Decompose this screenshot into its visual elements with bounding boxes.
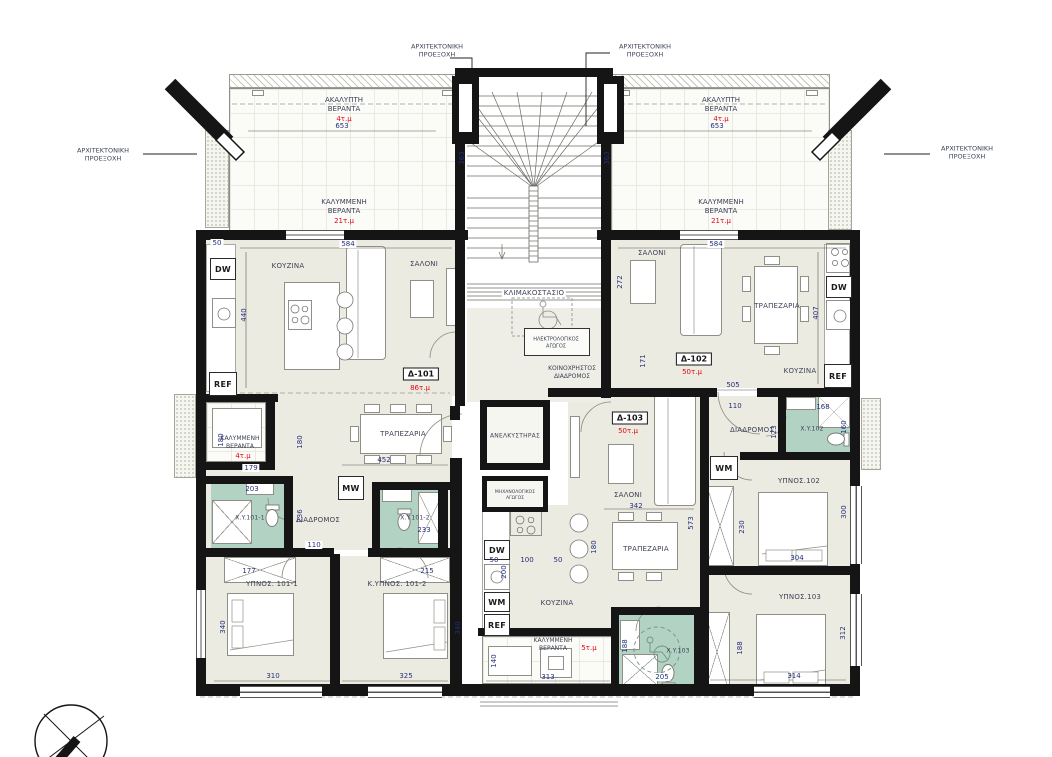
room-label-bedroom-103: ΥΠΝΟΣ.103 xyxy=(779,593,821,601)
dim-110: 110 xyxy=(305,541,322,549)
window xyxy=(850,486,862,564)
wall xyxy=(450,406,460,420)
wall xyxy=(548,388,603,397)
chair xyxy=(618,512,634,521)
chair xyxy=(800,306,809,322)
north-compass-icon xyxy=(35,705,107,757)
dim-272: 272 xyxy=(616,275,624,288)
dim-325: 325 xyxy=(399,672,412,680)
wall xyxy=(757,388,850,397)
balcony-door xyxy=(680,230,738,240)
wall xyxy=(611,607,619,692)
side-table-d101 xyxy=(410,280,434,318)
dim-314: 314 xyxy=(787,672,800,680)
hob-d103 xyxy=(510,510,542,536)
side-table-d103 xyxy=(608,444,634,484)
room-label-dining-d101: ΤΡΑΠΕΖΑΡΙΑ xyxy=(380,430,426,438)
dim-340: 340 xyxy=(454,621,462,634)
chair xyxy=(416,455,432,464)
dim-304: 304 xyxy=(790,554,803,562)
pillar-inset xyxy=(604,84,617,132)
chair xyxy=(390,404,406,413)
label-common-corridor: ΚΟΙΝΟΧΡΗΣΤΟΣ ΔΙΑΔΡΟΜΟΣ xyxy=(532,365,612,381)
dim-300: 300 xyxy=(840,505,848,518)
dim-50: 50 xyxy=(554,556,563,564)
refrigerator-tag: REF xyxy=(824,364,852,388)
apartment-tag-d103: Δ-103 xyxy=(612,412,648,425)
dim-363: 363 xyxy=(603,151,611,164)
dim-180: 180 xyxy=(217,433,225,446)
dim-230: 230 xyxy=(738,520,746,533)
sofa-d101 xyxy=(346,246,386,360)
room-label-bath-xy102: X.Y.102 xyxy=(800,426,823,433)
dim-50: 50 xyxy=(490,556,499,564)
wall xyxy=(196,548,334,557)
room-label-bath-xy101-1: X.Y.101-1 xyxy=(235,515,265,522)
chair xyxy=(443,426,452,442)
tv-unit-d102 xyxy=(630,260,656,304)
wall xyxy=(372,482,380,550)
dim-110: 110 xyxy=(728,402,741,410)
dim-203: 203 xyxy=(245,485,258,493)
chair xyxy=(800,276,809,292)
dim-180: 180 xyxy=(296,435,304,448)
room-label-living-d102: ΣΑΛΟΝΙ xyxy=(638,249,666,257)
dim-123: 123 xyxy=(770,425,778,438)
window xyxy=(850,594,862,666)
wall xyxy=(450,458,462,550)
callout-arch-projection-right: ΑΡΧΙΤΕΚΤΟΝΙΚΗ ΠΡΟΕΞΟΧΗ xyxy=(937,145,997,162)
sofa-d103 xyxy=(654,394,696,506)
apartment-area-d102: 50τ.μ xyxy=(682,368,702,376)
chair xyxy=(390,455,406,464)
dishwasher-tag: DW xyxy=(826,276,852,298)
wall xyxy=(438,482,448,550)
chair xyxy=(350,426,359,442)
refrigerator-tag: REF xyxy=(209,372,237,396)
chair xyxy=(618,572,634,581)
veranda-covered-area: 21τ.μ xyxy=(711,217,731,225)
veranda-open-label: ΑΚΑΛΥΠΤΗ ΒΕΡΑΝΤΑ xyxy=(688,96,754,114)
vanity-xy101-2 xyxy=(382,489,412,502)
wall xyxy=(450,548,462,688)
room-label-kitchen-d102: ΚΟΥΖΙΝΑ xyxy=(784,367,817,375)
wall xyxy=(694,607,702,692)
wall xyxy=(266,394,275,470)
chair xyxy=(646,512,662,521)
dim-505: 505 xyxy=(726,381,739,389)
dim-160: 160 xyxy=(840,420,848,433)
washing-machine-tag: WM xyxy=(710,456,738,480)
veranda-small-area: 4τ.μ xyxy=(235,452,250,460)
veranda-bottom-label: ΚΑΛΥΜΜΕΝΗ ΒΕΡΑΝΤΑ xyxy=(524,637,582,653)
pillar-inset xyxy=(459,84,472,132)
dim-312: 312 xyxy=(839,626,847,639)
window xyxy=(196,590,206,658)
dim-340: 340 xyxy=(219,620,227,633)
apartment-tag-d102: Δ-102 xyxy=(676,353,712,366)
dim-168: 168 xyxy=(816,403,829,411)
room-label-stairwell: ΚΛΙΜΑΚΟΣΤΑΣΙΟ xyxy=(502,289,566,297)
apartment-area-d103: 50τ.μ xyxy=(618,427,638,435)
dim-100: 100 xyxy=(520,556,533,564)
room-label-bedroom-101-2: Κ.ΥΠΝΟΣ. 101-2 xyxy=(367,580,426,588)
dim-653: 653 xyxy=(335,122,348,130)
room-label-living-d101: ΣΑΛΟΝΙ xyxy=(410,260,438,268)
stair-treads xyxy=(467,92,601,300)
exterior-texture-right xyxy=(828,130,852,230)
apartment-tag-d101: Δ-101 xyxy=(403,368,439,381)
room-label-living-d103: ΣΑΛΟΝΙ xyxy=(614,491,642,499)
callout-arch-projection-top-right: ΑΡΧΙΤΕΚΤΟΝΙΚΗ ΠΡΟΕΞΟΧΗ xyxy=(614,43,676,60)
sofa-d102 xyxy=(680,244,722,336)
dim-50: 50 xyxy=(211,239,224,247)
dim-363: 363 xyxy=(458,151,466,164)
sink-d102 xyxy=(826,300,852,330)
dim-233: 233 xyxy=(417,526,430,534)
bed-101-1 xyxy=(227,593,294,656)
wall xyxy=(330,554,340,686)
dishwasher-tag: DW xyxy=(210,258,236,280)
vent xyxy=(806,90,818,96)
dim-215: 215 xyxy=(420,567,433,575)
hob-d101 xyxy=(288,300,312,330)
floor-plan: DW REF MW DW REF DW WM REF WM ΑΡΧΙΤΕΚΤΟΝ… xyxy=(0,0,1052,757)
dim-440: 440 xyxy=(240,308,248,321)
wall xyxy=(284,476,293,556)
dim-180: 180 xyxy=(590,540,598,553)
veranda-open-label: ΑΚΑΛΥΠΤΗ ΒΕΡΑΝΤΑ xyxy=(311,96,377,114)
room-label-bedroom-101-1: ΥΠΝΟΣ. 101-1 xyxy=(246,580,298,588)
dim-310: 310 xyxy=(266,672,279,680)
dim-584: 584 xyxy=(339,240,356,248)
refrigerator-tag: REF xyxy=(484,614,510,636)
window xyxy=(368,686,442,698)
dim-584: 584 xyxy=(707,240,724,248)
room-label-kitchen-d103: ΚΟΥΖΙΝΑ xyxy=(541,599,574,607)
dim-653: 653 xyxy=(710,122,723,130)
exterior-texture-left xyxy=(205,130,229,228)
veranda-covered-label: ΚΑΛΥΜΜΕΝΗ ΒΕΡΑΝΤΑ xyxy=(688,198,754,216)
dim-188: 188 xyxy=(621,639,629,652)
tv-unit-d103 xyxy=(570,416,580,478)
balcony-rails xyxy=(480,702,618,706)
callout-arch-projection-top-left: ΑΡΧΙΤΕΚΤΟΝΙΚΗ ΠΡΟΕΞΟΧΗ xyxy=(406,43,468,60)
exterior-texture-right-low xyxy=(861,398,881,470)
wall xyxy=(204,476,292,484)
vent xyxy=(252,90,264,96)
washing-machine-tag: WM xyxy=(484,592,510,612)
dim-205: 205 xyxy=(653,673,670,681)
awning-hatch-left xyxy=(229,74,457,88)
exterior-texture-left-low xyxy=(174,394,196,478)
chair xyxy=(742,306,751,322)
wall xyxy=(708,566,850,575)
chair xyxy=(364,404,380,413)
dim-313: 313 xyxy=(541,673,554,681)
room-label-hall-right: ΔΙΑΔΡΟΜΟΣ xyxy=(730,426,774,434)
window xyxy=(240,686,322,698)
sink-d101 xyxy=(212,298,236,328)
window xyxy=(754,686,830,698)
wall xyxy=(611,607,703,615)
wall xyxy=(740,452,850,460)
dim-236: 236 xyxy=(296,509,304,522)
veranda-table-inner xyxy=(548,656,564,670)
room-label-elevator: ΑΝΕΛΚΥΣΤΗΡΑΣ xyxy=(490,433,540,440)
dim-452: 452 xyxy=(377,456,390,464)
room-label-bath-xy101-2: X.Y.101-2 xyxy=(400,515,430,522)
room-label-dining-d102: ΤΡΑΠΕΖΑΡΙΑ xyxy=(754,302,800,310)
veranda-bottom-area: 5τ.μ xyxy=(581,644,596,652)
room-label-bath-xy103: X.Y.103 xyxy=(666,648,689,655)
room-label-kitchen-d101: ΚΟΥΖΙΝΑ xyxy=(272,262,305,270)
shower-xy101-1 xyxy=(212,500,252,544)
veranda-covered-label: ΚΑΛΥΜΜΕΝΗ ΒΕΡΑΝΤΑ xyxy=(311,198,377,216)
awning-hatch-right xyxy=(611,74,830,88)
dim-179: 179 xyxy=(242,464,259,472)
callout-arch-projection-left: ΑΡΧΙΤΕΚΤΟΝΙΚΗ ΠΡΟΕΞΟΧΗ xyxy=(73,147,133,164)
wall xyxy=(601,306,611,398)
label-mechanical-shaft: ΜΗΧΑΝΟΛΟΓΙΚΟΣ ΑΓΩΓΟΣ xyxy=(487,490,543,502)
veranda-covered-area: 21τ.μ xyxy=(334,217,354,225)
dim-188: 188 xyxy=(736,641,744,654)
apartment-area-d101: 86τ.μ xyxy=(410,384,430,392)
dim-171: 171 xyxy=(639,354,647,367)
shower-xy103 xyxy=(622,654,658,686)
vanity-xy102 xyxy=(786,397,816,410)
chair xyxy=(416,404,432,413)
room-label-dining-d103: ΤΡΑΠΕΖΑΡΙΑ xyxy=(623,545,669,553)
chair xyxy=(764,346,780,355)
dim-407: 407 xyxy=(812,306,820,319)
microwave-tag: MW xyxy=(338,476,364,500)
dim-177: 177 xyxy=(242,567,255,575)
chair xyxy=(764,256,780,265)
chair xyxy=(742,276,751,292)
label-electrical-shaft: ΗΛΕΚΤΡΟΛΟΓΙΚΟΣ ΑΓΩΓΟΣ xyxy=(530,337,582,350)
dim-342: 342 xyxy=(629,502,642,510)
closet-bed102 xyxy=(706,486,734,566)
dim-140: 140 xyxy=(490,654,498,667)
dim-200: 200 xyxy=(500,565,508,578)
room-label-bedroom-102: ΥΠΝΟΣ.102 xyxy=(778,477,820,485)
bed-101-2 xyxy=(383,593,448,659)
wall xyxy=(778,396,786,456)
chair xyxy=(646,572,662,581)
wall xyxy=(204,462,275,470)
balcony-door xyxy=(286,230,344,240)
dim-573: 573 xyxy=(687,516,695,529)
hob-d102 xyxy=(826,243,852,273)
